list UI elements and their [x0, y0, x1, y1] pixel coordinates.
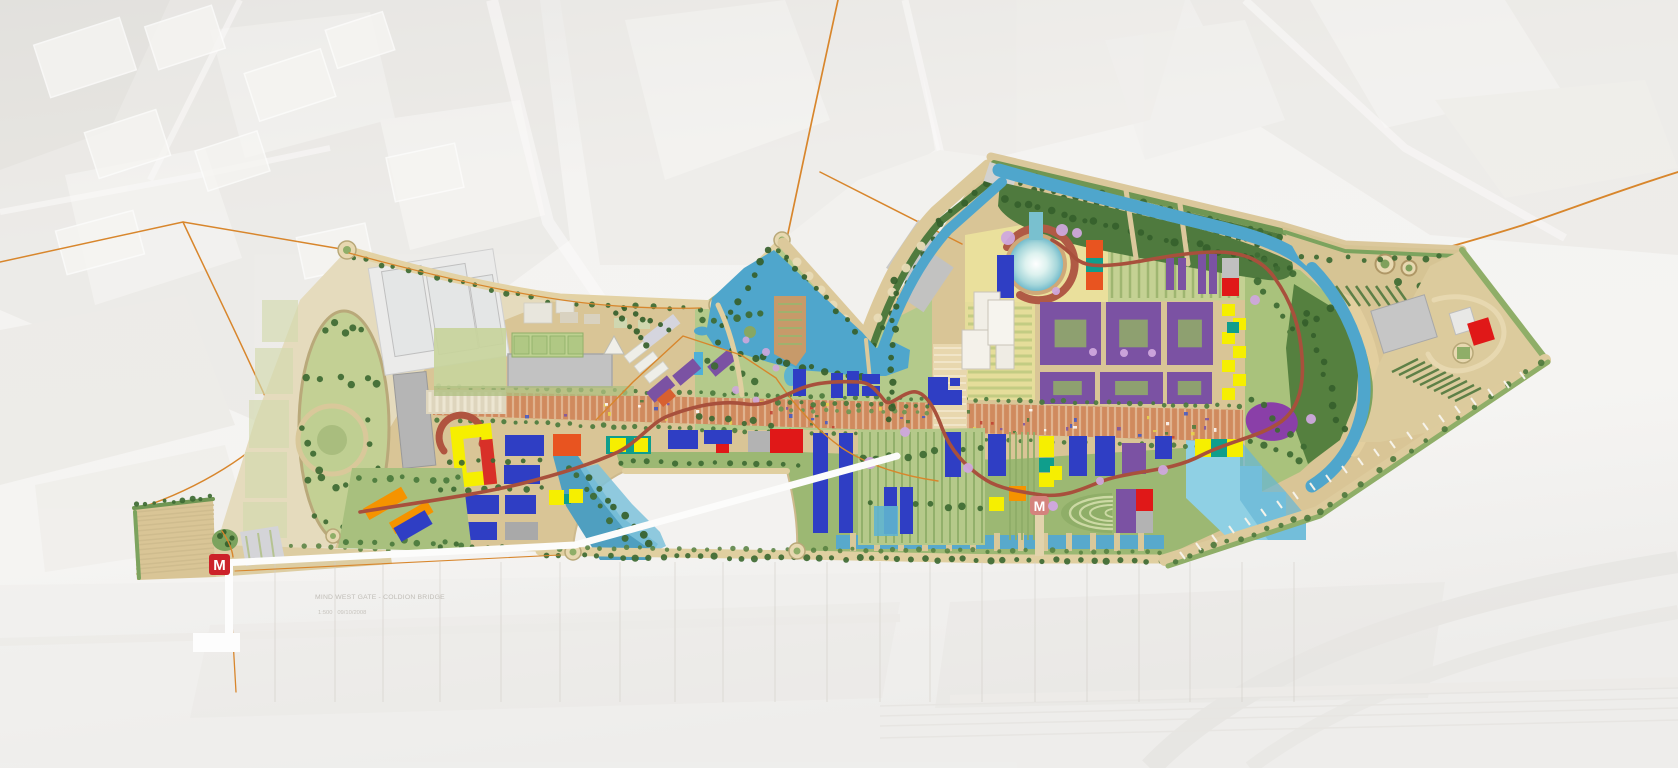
svg-text:M: M — [1034, 498, 1046, 514]
svg-text:MIND WEST GATE - COLDION BRIDG: MIND WEST GATE - COLDION BRIDGE — [315, 594, 445, 601]
svg-text:M: M — [213, 557, 226, 574]
svg-text:1:500 09/10/2008: 1:500 09/10/2008 — [318, 610, 366, 616]
